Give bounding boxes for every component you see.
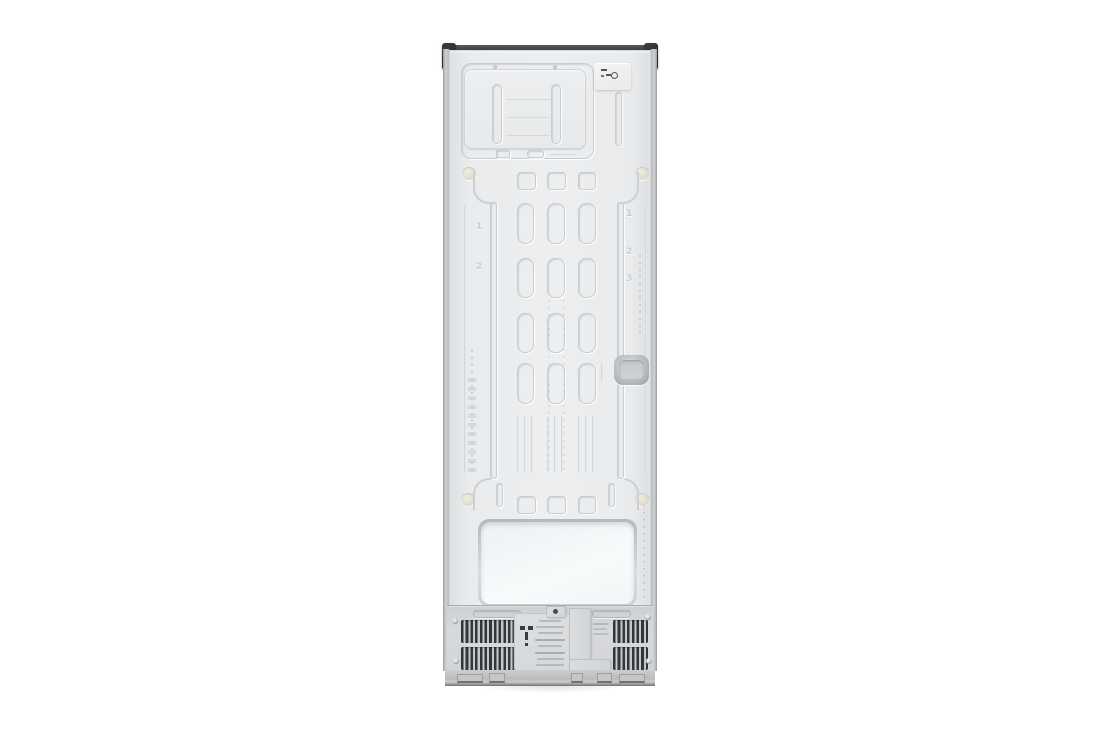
grip-recess bbox=[614, 355, 649, 385]
side-channel-right bbox=[617, 202, 624, 479]
panel-rib bbox=[506, 99, 550, 101]
screw-icon bbox=[553, 65, 557, 69]
screw-icon bbox=[646, 658, 652, 664]
foot-bracket bbox=[597, 673, 612, 683]
panel-groove bbox=[615, 92, 622, 146]
cord-info-plate bbox=[594, 63, 631, 90]
perforation-dots bbox=[548, 300, 550, 470]
foot-bracket bbox=[489, 673, 505, 683]
stamped-square bbox=[578, 496, 596, 514]
edge-groove-right bbox=[645, 205, 647, 473]
stamped-square bbox=[547, 172, 566, 190]
stamped-rib bbox=[578, 416, 580, 473]
perforation-dots bbox=[563, 300, 565, 470]
stamped-rib bbox=[554, 416, 556, 473]
embossed-marking bbox=[593, 633, 609, 635]
perforation-dots bbox=[639, 255, 641, 335]
label-text-line bbox=[539, 620, 561, 622]
panel-rib bbox=[506, 135, 550, 137]
panel-groove bbox=[549, 154, 577, 156]
grounding-plug-icon bbox=[611, 72, 618, 79]
bracket-slot bbox=[592, 610, 631, 618]
stamped-slot bbox=[578, 203, 596, 244]
stamped-hook-groove bbox=[473, 172, 491, 204]
stamped-rib bbox=[531, 416, 533, 473]
label-text-line bbox=[536, 664, 564, 666]
vent-grille-right-bottom bbox=[613, 647, 648, 670]
label-text-line bbox=[537, 658, 564, 660]
product-photo-canvas: { "subject": { "type": "appliance-photo"… bbox=[0, 0, 1100, 730]
side-wall-right bbox=[651, 49, 657, 671]
machine-compartment bbox=[447, 605, 653, 671]
stamped-hook-groove bbox=[473, 478, 491, 510]
rating-label bbox=[514, 613, 572, 671]
access-panel-cover bbox=[464, 69, 586, 149]
label-text-line bbox=[538, 645, 562, 647]
panel-rib bbox=[506, 117, 550, 119]
label-text-line bbox=[538, 632, 563, 634]
panel-clip bbox=[496, 150, 510, 158]
grounding-plug-icon bbox=[520, 626, 534, 650]
compressor-cover bbox=[481, 522, 634, 604]
stamped-slot bbox=[578, 363, 596, 404]
label-text-line bbox=[535, 639, 565, 641]
stamped-square bbox=[547, 496, 566, 514]
embossed-number: 3 bbox=[626, 275, 632, 284]
panel-groove bbox=[601, 363, 603, 381]
compressor-cover-recess bbox=[478, 519, 637, 607]
stamped-rib bbox=[524, 416, 526, 473]
panel-slot bbox=[551, 84, 561, 144]
embossed-number: 2 bbox=[476, 263, 482, 272]
panel-slot bbox=[492, 84, 502, 144]
stamped-rib bbox=[585, 416, 587, 473]
embossed-number: 1 bbox=[476, 223, 482, 232]
embossed-marking bbox=[593, 623, 609, 625]
foot-bracket bbox=[457, 674, 483, 683]
perforation-dots bbox=[471, 350, 473, 475]
screw-icon bbox=[493, 65, 497, 69]
label-tab bbox=[546, 606, 566, 618]
stamped-slot bbox=[578, 313, 596, 353]
edge-groove-left bbox=[464, 205, 466, 473]
plate-mark bbox=[601, 69, 607, 71]
screw-icon bbox=[553, 609, 558, 614]
foot-bracket bbox=[571, 673, 583, 683]
stamped-square bbox=[517, 172, 536, 190]
base-strip bbox=[445, 670, 655, 686]
vent-grille-left-top bbox=[461, 620, 518, 643]
perforation-dots bbox=[643, 505, 645, 600]
plate-mark bbox=[601, 75, 604, 77]
stamped-slot bbox=[547, 203, 565, 244]
stamped-slot bbox=[517, 363, 534, 404]
label-text-line bbox=[536, 626, 564, 628]
stamped-slot bbox=[517, 203, 534, 244]
label-text-line bbox=[535, 652, 565, 654]
stamped-hook-groove bbox=[621, 172, 639, 204]
panel-clip bbox=[527, 150, 544, 158]
floor-shadow bbox=[447, 686, 653, 696]
stamped-slot bbox=[608, 483, 615, 507]
side-channel-left bbox=[490, 202, 497, 479]
embossed-number: 1 bbox=[626, 210, 632, 219]
stamped-slot bbox=[547, 258, 565, 298]
embossed-number: 2 bbox=[626, 248, 632, 257]
stamped-rib bbox=[592, 416, 594, 473]
vent-grille-left-bottom bbox=[461, 647, 518, 670]
stamped-slot bbox=[578, 258, 596, 298]
stamped-rib bbox=[517, 416, 519, 473]
refrigerator-back: 1 2 1 2 3 bbox=[443, 45, 657, 686]
embossed-marking bbox=[593, 628, 607, 630]
stamped-slot bbox=[517, 258, 534, 298]
back-panel: 1 2 1 2 3 bbox=[449, 50, 651, 606]
foot-bracket bbox=[619, 674, 645, 683]
grip-recess-floor bbox=[619, 360, 644, 379]
screw-icon bbox=[453, 658, 459, 664]
stamped-slot bbox=[517, 313, 534, 353]
vent-grille-right-top bbox=[613, 620, 648, 643]
stamped-square bbox=[578, 172, 596, 190]
screw-icon bbox=[452, 618, 458, 624]
stamped-hook-groove bbox=[621, 478, 639, 510]
stamped-slot bbox=[496, 483, 503, 507]
stamped-square bbox=[517, 496, 536, 514]
screw-icon bbox=[645, 614, 651, 620]
